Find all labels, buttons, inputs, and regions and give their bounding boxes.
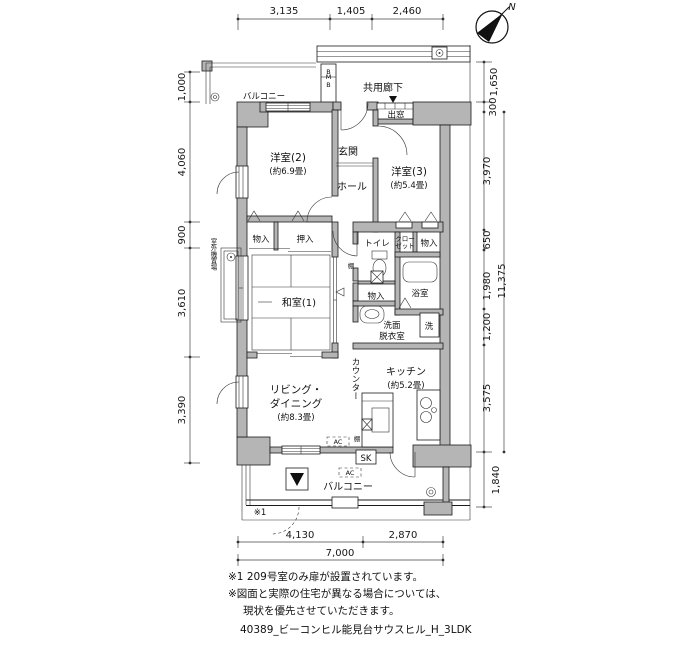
common-corridor-label: 共用廊下 [363,81,403,94]
dim-bottom-1: 4,130 [286,530,315,541]
kitchen-counter [362,393,393,447]
note-line-1: ※1 209号室のみ扉が設置されています。 [228,570,423,583]
bathtub [403,262,437,282]
dim-left-2: 4,060 [177,148,188,177]
dim-left-3: 900 [177,225,188,244]
dimensions-bottom: 4,130 2,870 7,000 [237,530,445,566]
hall-label: ホール [337,181,367,193]
dimensions-top: 3,135 1,405 2,460 [237,6,445,30]
ac-label-2: AC [346,469,355,477]
compass: N [476,2,516,43]
dimensions-right: 1,650 300 3,970 650 1,980 11,375 1,200 3… [476,61,508,509]
note-line-3: 現状を優先させていただきます。 [243,604,399,617]
dim-right-1840: 1,840 [491,466,502,495]
dim-top-2: 1,405 [337,6,366,17]
dim-right-1980: 1,980 [482,272,493,301]
dim-left-1: 1,000 [177,73,188,102]
living-label-2: ダイニング [270,397,323,410]
room2-size-label: (約6.9畳) [269,166,306,177]
meter-box: B MB [321,64,336,103]
kitchen-size-label: (約5.2畳) [387,380,424,391]
floor-plan-drawing: 3,135 1,405 2,460 1,000 4,060 900 3,610 … [0,0,700,650]
common-corridor: 共用廊下 [317,46,470,103]
drain-icon [211,93,219,101]
floor-plan-page: 3,135 1,405 2,460 1,000 4,060 900 3,610 … [0,0,700,650]
dim-right-3970: 3,970 [482,157,493,186]
dim-bottom-total: 7,000 [326,548,355,559]
plan-filename: 40389_ビーコンヒル能見台サウスヒル_H_3LDK [240,623,473,636]
toilet-label: トイレ [364,239,390,249]
bay-window-label: 出窓 [387,110,405,121]
dim-right-11375: 11,375 [497,264,508,299]
bay-window: 出窓 [377,103,413,121]
room2-label: 洋室(2) [270,151,306,164]
storage2-label: 物入 [420,238,438,249]
washbasin [360,306,384,323]
kitchen-balcony-door-arc [390,452,415,477]
dim-right-650: 650 [482,230,493,249]
storage1-label: 物入 [252,234,270,245]
living-size-label: (約8.3畳) [277,412,314,423]
footer-notes: ※1 209号室のみ扉が設置されています。 ※図面と実際の住宅が異なる場合につい… [228,570,473,636]
balcony-bottom-label: バルコニー [323,481,373,493]
dimensions-left: 1,000 4,060 900 3,610 3,390 [177,71,200,465]
shelf2-label: 棚 [354,434,361,443]
dim-right-3575: 3,575 [482,384,493,413]
outdoor-unit-space [221,248,241,322]
dim-left-5: 3,390 [177,396,188,425]
washitsu-label: 和室(1) [282,296,316,309]
balcony-top: バルコニー [202,61,316,104]
duct-shaft [371,271,383,283]
corridor-entry-marker [389,96,397,103]
shelf1-label: 棚 [348,261,355,270]
living-label-1: リビング・ [270,383,323,396]
kitchen-label: キッチン [386,366,426,378]
entrance-label: 玄関 [338,145,358,158]
bath-label: 浴室 [411,288,429,299]
dim-top-3: 2,460 [393,6,422,17]
balcony-top-label: バルコニー [243,92,285,102]
dim-left-4: 3,610 [177,289,188,318]
oshiire-label: 押入 [296,234,314,245]
sk-label: SK [361,454,372,464]
drain-icon [427,488,436,497]
note-ref-label: ※1 [254,508,267,518]
dim-bottom-2: 2,870 [389,530,418,541]
counter-label: カウンター [350,358,360,401]
ac-label-1: AC [334,438,343,446]
dim-right-1650: 1,650 [489,68,500,97]
evacuation-hatch [286,468,308,490]
storage3-label: 物入 [367,291,385,302]
washroom-label-1: 洗面 [383,320,401,331]
closet-label-2: ゼット [395,241,415,250]
dim-right-1200: 1,200 [482,313,493,342]
stove-counter [417,390,440,440]
outdoor-unit-label: 室外機置場 [209,236,217,271]
room3-door-arc [378,126,407,155]
note-line-2: ※図面と実際の住宅が異なる場合については、 [228,587,446,600]
dim-top-1: 3,135 [270,6,299,17]
storage-open-arrow [336,288,344,296]
entrance-door-arc [341,103,368,130]
dim-right-300: 300 [488,97,499,116]
washer-label: 洗 [425,321,434,332]
washroom-label-2: 脱衣室 [379,331,405,342]
meter-box-label: MB [325,73,333,89]
compass-north-label: N [508,2,516,13]
room3-size-label: (約5.4畳) [390,180,427,191]
room3-label: 洋室(3) [391,165,427,178]
